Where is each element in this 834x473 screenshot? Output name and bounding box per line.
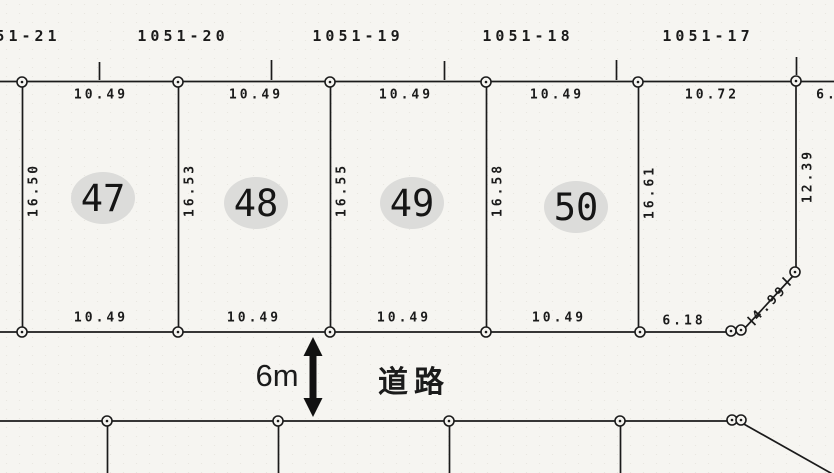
boundary-lines — [0, 57, 834, 473]
top-dimension: 10.49 — [74, 88, 128, 103]
upper-lot-label: 1051-17 — [662, 27, 753, 45]
plot-number: 47 — [81, 177, 126, 220]
side-dimension: 16.50 — [27, 163, 42, 217]
top-dimension: 10.72 — [685, 88, 739, 103]
bottom-dimension: 10.49 — [74, 311, 128, 326]
road-width-arrow-icon — [304, 337, 323, 417]
upper-lot-label: 51-21 — [0, 27, 61, 45]
upper-lot-label: 1051-19 — [312, 27, 403, 45]
top-dimension: 10.49 — [229, 88, 283, 103]
upper-lot-label: 1051-18 — [482, 27, 573, 45]
lower-chamfer-diagonal-line — [742, 423, 834, 473]
plot-highlight-49: 49 — [380, 177, 444, 229]
side-dimension: 12.39 — [801, 149, 816, 203]
top-dimension: 10.49 — [379, 88, 433, 103]
diagonal-dim-tick — [783, 278, 791, 286]
plot-number: 48 — [234, 182, 279, 225]
parcel-linework — [0, 0, 834, 473]
bottom-dimension: 10.49 — [377, 311, 431, 326]
plot-number: 49 — [390, 182, 435, 225]
bottom-dimension: 10.49 — [532, 311, 586, 326]
side-dimension: 16.55 — [335, 163, 350, 217]
plot-highlight-47: 47 — [71, 172, 135, 224]
top-dimension: 10.49 — [530, 88, 584, 103]
plot-highlight-48: 48 — [224, 177, 288, 229]
road-width-label: 6m — [255, 358, 298, 394]
road-name-label: 道路 — [378, 357, 450, 401]
side-dimension: 16.53 — [183, 163, 198, 217]
side-dimension: 16.61 — [643, 165, 658, 219]
plot-highlight-50: 50 — [544, 181, 608, 233]
survey-map-page: 51-21 1051-20 1051-19 1051-18 1051-17 10… — [0, 0, 834, 473]
plot-number: 50 — [554, 186, 599, 229]
top-dimension-partial: 6. — [816, 88, 834, 103]
upper-lot-label: 1051-20 — [137, 27, 228, 45]
side-dimension: 16.58 — [491, 163, 506, 217]
bottom-dimension: 10.49 — [227, 311, 281, 326]
bottom-dimension: 6.18 — [662, 314, 705, 329]
